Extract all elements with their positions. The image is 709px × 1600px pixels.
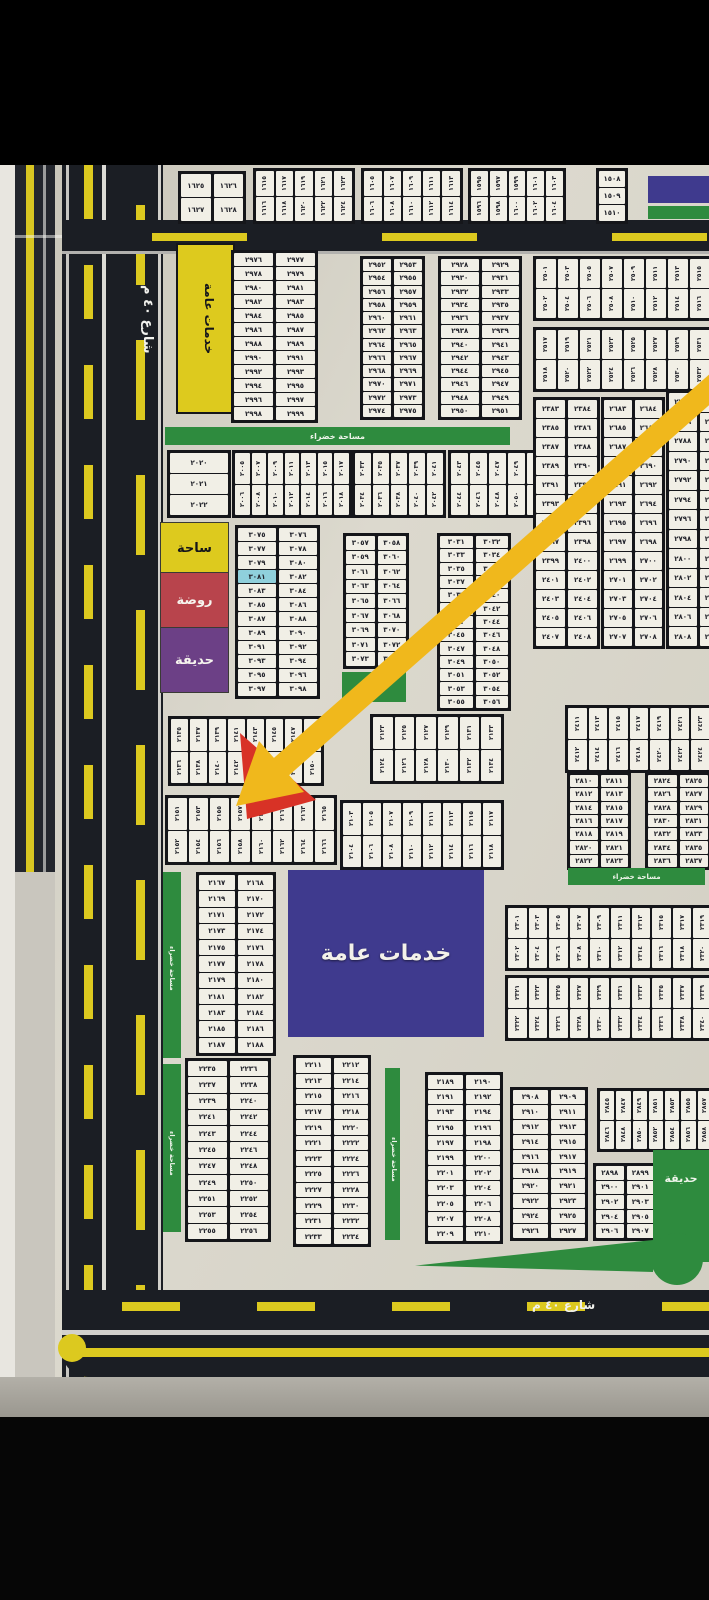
plot-٢٦٩٢: ٢٦٩٢ [635,476,663,494]
plot-٢٩٨١: ٢٩٨١ [276,281,315,294]
plot-٢٠١٨: ٢٠١٨ [334,485,349,516]
green-area-label: مساحة خضراء [612,873,660,881]
plot-٢٩٨٧: ٢٩٨٧ [276,323,315,336]
plot-٢٨٥٨: ٢٨٥٨ [698,1121,709,1150]
plot-٢٣٣٨: ٢٣٣٨ [673,1009,692,1039]
plot-٢٩٣٠: ٢٩٣٠ [441,272,479,284]
plot-٢١٨٦: ٢١٨٦ [238,1021,274,1036]
plot-٢٩١٨: ٢٩١٨ [513,1164,548,1178]
plot-٢٨٥١: ٢٨٥١ [649,1091,663,1120]
plot-٢٨٠٢: ٢٨٠٢ [669,569,697,588]
plot-٢٤٠٥: ٢٤٠٥ [536,609,565,627]
plot-٢١٥٥: ٢١٥٥ [210,798,229,830]
plot-٢٦٨٤: ٢٦٨٤ [635,400,663,418]
street-40m-bottom-road: شارع ٤٠ م [62,1290,709,1377]
plot-٢٣٩٣: ٢٣٩٣ [536,495,565,513]
green-area-bar-right: مساحة خضراء [568,868,705,885]
plot-٢٣٠٤: ٢٣٠٤ [529,939,548,969]
top-road [62,220,709,254]
plot-١٦٢٤: ١٦٢٤ [334,197,352,222]
plot-٢٣٠٦: ٢٣٠٦ [549,939,568,969]
plot-٢٢٢١: ٢٢٢١ [296,1136,331,1151]
plot-٢٥١٣: ٢٥١٣ [668,259,688,288]
plot-٢٢٠٥: ٢٢٠٥ [428,1196,463,1210]
street-bottom-label: شارع ٤٠ م [532,1298,595,1312]
plot-٢٠٤٩: ٢٠٤٩ [508,453,525,484]
plot-٢٩٥٨: ٢٩٥٨ [363,299,391,311]
plot-١٦٠٠: ١٦٠٠ [509,197,526,222]
plot-٢٥٢٢: ٢٥٢٢ [580,360,600,389]
plot-١٦٠٦: ١٦٠٦ [364,197,382,222]
plot-٢٠١٤: ٢٠١٤ [301,485,316,516]
plot-٢٩٤٩: ٢٩٤٩ [482,392,520,404]
plot-٢٠٢١: ٢٠٢١ [170,474,228,494]
plot-٢٨٠٧: ٢٨٠٧ [700,608,709,627]
plot-٢٣٠٨: ٢٣٠٨ [570,939,589,969]
plot-map-photo: شارع ٤٠ م شارع ٤٠ م ١٦٢٦١٦٢٥١٦٢٨١٦٢٧ ١٦٢… [0,0,709,1600]
plot-٢١٦٧: ٢١٦٧ [199,875,235,890]
plot-٢٧٠١: ٢٧٠١ [604,571,632,589]
plot-٢١٤٤: ٢١٤٤ [247,752,264,784]
plot-١٦١٣: ١٦١٣ [442,171,460,196]
plot-٢٢٢٣: ٢٢٢٣ [296,1151,331,1166]
plot-٢٣١٠: ٢٣١٠ [590,939,609,969]
green-space-sliver [648,206,709,219]
plot-٢٤٢٣: ٢٤٢٣ [691,708,709,739]
plot-٢٦٩٧: ٢٦٩٧ [604,533,632,551]
plot-٢٨٠٤: ٢٨٠٤ [669,588,697,607]
plot-٢٦٩٥: ٢٦٩٥ [604,514,632,532]
plot-block-1508-1510: ١٥٠٨١٥٠٩١٥١٠ [596,168,628,224]
plot-٢٣٣٠: ٢٣٣٠ [590,1009,609,1039]
plot-٢٩٠١: ٢٩٠١ [627,1181,655,1195]
plot-٢٩٠٤: ٢٩٠٤ [596,1210,624,1224]
plot-٣٠٤٨: ٣٠٤٨ [476,642,509,654]
plot-٢٥١٠: ٢٥١٠ [624,289,644,318]
plot-٢٠٤٧: ٢٠٤٧ [489,453,506,484]
plot-١٥٠٩: ١٥٠٩ [599,188,625,204]
plot-١٦٠١: ١٦٠١ [527,171,544,196]
plot-٢٩٣٥: ٢٩٣٥ [482,299,520,311]
plot-١٦٠٨: ١٦٠٨ [384,197,402,222]
plot-٢١٢٩: ٢١٢٩ [438,717,458,749]
plot-٣٠٦٦: ٣٠٦٦ [378,594,407,608]
plot-٢١٣٣: ٢١٣٣ [481,717,501,749]
plot-٢٠١٥: ٢٠١٥ [318,453,333,484]
plot-٢٨٤٥: ٢٨٤٥ [600,1091,614,1120]
plot-٢٨٠٠: ٢٨٠٠ [669,549,697,568]
plot-٢٣٨٩: ٢٣٨٩ [536,457,565,475]
plot-٢٩١٩: ٢٩١٩ [551,1164,586,1178]
plot-٢٩١٠: ٢٩١٠ [513,1105,548,1119]
plot-١٦١١: ١٦١١ [423,171,441,196]
plot-٢١٦٣: ٢١٦٣ [294,798,313,830]
plot-٢٩٤٤: ٢٩٤٤ [441,365,479,377]
plot-٢٣٣٧: ٢٣٣٧ [673,978,692,1008]
plot-٢٠١٠: ٢٠١٠ [268,485,283,516]
plot-٢٩٧٨: ٢٩٧٨ [234,267,273,280]
public-services-block-small [648,176,709,203]
plot-٢٩٨٤: ٢٩٨٤ [234,309,273,322]
plot-block-2383-2408: ٢٣٨٤٢٣٨٣٢٣٨٦٢٣٨٥٢٣٨٨٢٣٨٧٢٣٩٠٢٣٨٩٢٣٩٢٢٣٩١… [533,397,600,649]
road-border-line [82,1348,709,1357]
plot-٣٠٧٧: ٣٠٧٧ [238,542,276,555]
plot-strip-2845-2858: ٢٨٥٧٢٨٥٥٢٨٥٣٢٨٥١٢٨٤٩٢٨٤٧٢٨٤٥٢٨٥٨٢٨٥٦٢٨٥٤… [597,1088,709,1152]
plot-٢٥١٥: ٢٥١٥ [690,259,709,288]
plot-٣٠٣٥: ٣٠٣٥ [440,563,473,575]
plot-٢٢٤٢: ٢٢٤٢ [230,1110,269,1125]
plot-٢٩٦١: ٢٩٦١ [394,312,422,324]
plot-٢٣١٤: ٢٣١٤ [632,939,651,969]
plot-٢١٨٧: ٢١٨٧ [199,1038,235,1053]
road-edge-line [66,165,69,1377]
plot-٢٢٠٢: ٢٢٠٢ [466,1166,501,1180]
plot-٣٠٧١: ٣٠٧١ [346,638,375,652]
plot-٢٨٣٥: ٢٨٣٥ [680,841,709,853]
plot-٢٣٢٠: ٢٣٢٠ [693,939,709,969]
green-area-label: مساحة خضراء [168,946,176,991]
plot-٢٣١٦: ٢٣١٦ [652,939,671,969]
plot-٢٦٨٣: ٢٦٨٣ [604,400,632,418]
plot-٢٧٨٤: ٢٧٨٤ [669,393,697,412]
street-left-label: شارع ٤٠ م [140,285,155,354]
plot-٢٤١٨: ٢٤١٨ [630,740,649,771]
plot-٢٢٢٨: ٢٢٢٨ [334,1183,369,1198]
plot-٢١٣٧: ٢١٣٧ [190,719,207,751]
plot-٢٨٢١: ٢٨٢١ [601,841,629,853]
green-area-strip-vertical: مساحة خضراء [385,1068,400,1240]
plot-٢٩٩٧: ٢٩٩٧ [276,393,315,406]
plot-٢٩٢٤: ٢٩٢٤ [513,1209,548,1223]
plot-٢٨٩٨: ٢٨٩٨ [596,1166,624,1180]
legend-saha: ساحة [160,522,229,574]
plot-٢٠٠٦: ٢٠٠٦ [235,485,250,516]
plot-٢٩٧٤: ٢٩٧٤ [363,405,391,417]
plot-٣٠٥٩: ٣٠٥٩ [346,551,375,565]
plot-٣٠٥٠: ٣٠٥٠ [476,656,509,668]
plot-٢٨٣٤: ٢٨٣٤ [648,841,677,853]
plot-block-3031-3056: ٣٠٣٢٣٠٣١٣٠٣٤٣٠٣٣٣٠٣٦٣٠٣٥٣٠٣٨٣٠٣٧٣٠٤٠٣٠٣٩… [437,533,511,711]
plot-٢١١٣: ٢١١٣ [443,803,461,835]
plot-٢٢٥١: ٢٢٥١ [188,1191,227,1206]
plot-٢٤١٤: ٢٤١٤ [589,740,608,771]
plot-٣٠٩٧: ٣٠٩٧ [238,683,276,696]
plot-٢٧٨٦: ٢٧٨٦ [669,413,697,432]
plot-٣٠٤١: ٣٠٤١ [440,603,473,615]
plot-٢٤٠٢: ٢٤٠٢ [568,571,597,589]
plot-block-top-strip: ١٦١٣١٦١١١٦٠٩١٦٠٧١٦٠٥١٦١٤١٦١٢١٦١٠١٦٠٨١٦٠٦ [361,168,463,224]
plot-٣٠٧٢: ٣٠٧٢ [378,638,407,652]
plot-strip-2123-2134: ٢١٣٣٢١٣١٢١٢٩٢١٢٧٢١٢٥٢١٢٣٢١٣٤٢١٣٢٢١٣٠٢١٢٨… [370,714,504,784]
plot-٣٠٨٧: ٣٠٨٧ [238,612,276,625]
plot-٢٨١٤: ٢٨١٤ [570,802,598,814]
plot-block-2952-2975: ٢٩٥٣٢٩٥٢٢٩٥٥٢٩٥٤٢٩٥٧٢٩٥٦٢٩٥٩٢٩٥٨٢٩٦١٢٩٦٠… [360,256,425,420]
plot-٢٠٤٢: ٢٠٤٢ [427,485,443,516]
plot-٢٢٢٤: ٢٢٢٤ [334,1151,369,1166]
plot-١٦٢٣: ١٦٢٣ [334,171,352,196]
plot-٢٧٨٧: ٢٧٨٧ [700,413,709,432]
plot-٢١١٠: ٢١١٠ [403,836,421,868]
plot-٢٤٠٤: ٢٤٠٤ [568,590,597,608]
plot-٣٠٩٤: ٣٠٩٤ [279,655,317,668]
plot-٢٥١٩: ٢٥١٩ [558,330,578,359]
plot-١٦٢٧: ١٦٢٧ [181,198,211,221]
plot-٢٥١٢: ٢٥١٢ [646,289,666,318]
plot-٢٣٨٨: ٢٣٨٨ [568,438,597,456]
plot-strip-2151-2166-arrow-target: ٢١٦٥٢١٦٣٢١٦١٢١٥٩٢١٥٧٢١٥٥٢١٥٣٢١٥١٢١٦٦٢١٦٤… [165,795,337,865]
plot-٢٩١٢: ٢٩١٢ [513,1120,548,1134]
plot-٢٨٥٠: ٢٨٥٠ [633,1121,647,1150]
plot-block-top-strip: ١٦٢٣١٦٢١١٦١٩١٦١٧١٦١٥١٦٢٤١٦٢٢١٦٢٠١٦١٨١٦١٦ [253,168,355,224]
plot-٢٩٠٧: ٢٩٠٧ [627,1224,655,1238]
photo-black-bottom [0,1417,709,1600]
plot-١٦٠٤: ١٦٠٤ [546,197,563,222]
wall-strip-left [0,165,15,1415]
plot-٢٨٤٨: ٢٨٤٨ [616,1121,630,1150]
plot-٢٠٣٦: ٢٠٣٦ [373,485,389,516]
plot-٢٩٩٩: ٢٩٩٩ [276,407,315,420]
plot-٢٩٠٠: ٢٩٠٠ [596,1181,624,1195]
public-services-yellow-block: خدمات عامة [176,243,235,414]
plot-٢٠٣٥: ٢٠٣٥ [373,453,389,484]
plot-٢٣٠٢: ٢٣٠٢ [508,939,527,969]
plot-٢٨٤٩: ٢٨٤٩ [633,1091,647,1120]
plot-٢٢٢٢: ٢٢٢٢ [334,1136,369,1151]
plot-٢٩٠٨: ٢٩٠٨ [513,1090,548,1104]
plot-٢١٤٠: ٢١٤٠ [209,752,226,784]
plot-٢٩٨٦: ٢٩٨٦ [234,323,273,336]
plot-٢١٤٩: ٢١٤٩ [304,719,321,751]
plot-٢٨٢٥: ٢٨٢٥ [680,775,709,787]
plot-٢١٦٨: ٢١٦٨ [238,875,274,890]
plot-٢١٦٩: ٢١٦٩ [199,891,235,906]
plot-٣٠٧٤: ٣٠٧٤ [378,652,407,666]
plot-٢١٧١: ٢١٧١ [199,908,235,923]
plot-٢٢٤٠: ٢٢٤٠ [230,1094,269,1109]
plot-٢١٩٤: ٢١٩٤ [466,1105,501,1119]
plot-٢١٧٧: ٢١٧٧ [199,956,235,971]
plot-٢٦٨٧: ٢٦٨٧ [604,438,632,456]
plot-٢٨٣٣: ٢٨٣٣ [680,828,709,840]
plot-٢٣٩٨: ٢٣٩٨ [568,533,597,551]
plot-block-2189-2210: ٢١٩٠٢١٨٩٢١٩٢٢١٩١٢١٩٤٢١٩٣٢١٩٦٢١٩٥٢١٩٨٢١٩٧… [425,1072,503,1244]
plot-١٦١٦: ١٦١٦ [256,197,274,222]
plot-٢٧٠٢: ٢٧٠٢ [635,571,663,589]
plot-٢٨٢٧: ٢٨٢٧ [680,788,709,800]
plot-١٥٩٧: ١٥٩٧ [490,171,507,196]
plot-٢٨١٦: ٢٨١٦ [570,815,598,827]
plot-٢٣١٧: ٢٣١٧ [673,908,692,938]
plot-٢١٢٥: ٢١٢٥ [395,717,415,749]
plot-٢٩٥٤: ٢٩٥٤ [363,272,391,284]
plot-٣٠٤٦: ٣٠٤٦ [476,629,509,641]
plot-٣٠٦٨: ٣٠٦٨ [378,609,407,623]
plot-٢٩٥٩: ٢٩٥٩ [394,299,422,311]
plot-٢٩٥١: ٢٩٥١ [482,405,520,417]
plot-٢٩٢٧: ٢٩٢٧ [551,1224,586,1238]
plot-٢٩٤١: ٢٩٤١ [482,339,520,351]
plot-٣٠٦٤: ٣٠٦٤ [378,580,407,594]
plot-٢٢٢٠: ٢٢٢٠ [334,1120,369,1135]
street-40m-left-road: شارع ٤٠ م [62,165,163,1377]
roundabout-green-circle [651,1233,703,1285]
legend-hadiqa-label: حديقة [175,653,214,668]
road-dash-line [152,233,709,241]
plot-٢١٠٥: ٢١٠٥ [363,803,381,835]
plot-٢١٨٣: ٢١٨٣ [199,1005,235,1020]
plot-٢٢٣٨: ٢٢٣٨ [230,1077,269,1092]
plot-strip-right-upper: ٢٥١٥٢٥١٣٢٥١١٢٥٠٩٢٥٠٧٢٥٠٥٢٥٠٣٢٥٠١٢٥١٦٢٥١٤… [533,256,709,321]
plot-٢٥٣١: ٢٥٣١ [690,330,709,359]
plot-٢٥٢٧: ٢٥٢٧ [646,330,666,359]
plot-٢٣٠١: ٢٣٠١ [508,908,527,938]
plot-٣٠٦١: ٣٠٦١ [346,565,375,579]
plot-strip-2033-2042: ٢٠٤١٢٠٣٩٢٠٣٧٢٠٣٥٢٠٣٣٢٠٤٢٢٠٤٠٢٠٣٨٢٠٣٦٢٠٣٤ [352,450,446,518]
plot-٢٨٥٦: ٢٨٥٦ [681,1121,695,1150]
plot-٢٤١٣: ٢٤١٣ [589,708,608,739]
plot-٢٩٨٣: ٢٩٨٣ [276,295,315,308]
plot-٢٨٥٢: ٢٨٥٢ [649,1121,663,1150]
plot-٢٩٠٣: ٢٩٠٣ [627,1195,655,1209]
plot-٢٣١١: ٢٣١١ [611,908,630,938]
plot-٢٩٧٢: ٢٩٧٢ [363,392,391,404]
plot-٢٠٤٤: ٢٠٤٤ [451,485,468,516]
plot-strip-2411-2424: ٢٤٢٣٢٤٢١٢٤١٩٢٤١٧٢٤١٥٢٤١٣٢٤١١٢٤٢٤٢٤٢٢٢٤٢٠… [565,705,709,773]
plot-٢٩٦٥: ٢٩٦٥ [394,339,422,351]
plot-٢٨١٥: ٢٨١٥ [601,802,629,814]
plot-٢٣٩٧: ٢٣٩٧ [536,533,565,551]
plot-٢٠٤٣: ٢٠٤٣ [451,453,468,484]
plot-٢٨١٣: ٢٨١٣ [601,788,629,800]
plot-٢٥٢٤: ٢٥٢٤ [602,360,622,389]
plot-٢٩٧٠: ٢٩٧٠ [363,378,391,390]
plot-٣٠٣٤: ٣٠٣٤ [476,549,509,561]
plot-٢٢١٤: ٢٢١٤ [334,1074,369,1089]
plot-٢١٩٥: ٢١٩٥ [428,1121,463,1135]
plot-block-2908-2927: ٢٩٠٩٢٩٠٨٢٩١١٢٩١٠٢٩١٣٢٩١٢٢٩١٥٢٩١٤٢٩١٧٢٩١٦… [510,1087,588,1241]
plot-١٦٢٠: ١٦٢٠ [295,197,313,222]
plot-٢٨٣٠: ٢٨٣٠ [648,815,677,827]
plot-block-2976-2999: ٢٩٧٧٢٩٧٦٢٩٧٩٢٩٧٨٢٩٨١٢٩٨٠٢٩٨٣٢٩٨٢٢٩٨٥٢٩٨٤… [231,250,318,423]
plot-٢٢٣١: ٢٢٣١ [296,1214,331,1229]
plot-٢٢٣٣: ٢٢٣٣ [296,1229,331,1244]
plot-٣٠٤٥: ٣٠٤٥ [440,629,473,641]
plot-٢١٤٥: ٢١٤٥ [266,719,283,751]
plot-block-2683-2708: ٢٦٨٤٢٦٨٣٢٦٨٦٢٦٨٥٢٦٨٨٢٦٨٧٢٦٩٠٢٦٨٩٢٦٩٢٢٦٩١… [601,397,665,649]
road-corner-dot [58,1334,86,1362]
plot-٢٨٣٧: ٢٨٣٧ [680,855,709,867]
plot-٢١٥٧: ٢١٥٧ [231,798,250,830]
plot-٢٣٣٩: ٢٣٣٩ [693,978,709,1008]
plot-٢٠٠٧: ٢٠٠٧ [252,453,267,484]
plot-٢١٥٦: ٢١٥٦ [210,831,229,863]
plot-٢٩٠٥: ٢٩٠٥ [627,1210,655,1224]
plot-٢١٢٧: ٢١٢٧ [416,717,436,749]
plot-٣٠٦٠: ٣٠٦٠ [378,551,407,565]
plot-٣٠٨١: ٣٠٨١ [238,570,276,583]
plot-٢٩٩١: ٢٩٩١ [276,351,315,364]
plot-٢٢٠٦: ٢٢٠٦ [466,1196,501,1210]
plot-٢٩٨٠: ٢٩٨٠ [234,281,273,294]
plot-٢٩٢٠: ٢٩٢٠ [513,1179,548,1193]
plot-٢٩٨٥: ٢٩٨٥ [276,309,315,322]
plot-٢١٨٠: ٢١٨٠ [238,973,274,988]
plot-٣٠٣٢: ٣٠٣٢ [476,536,509,548]
plot-٣٠٨٨: ٣٠٨٨ [279,612,317,625]
plot-٢٠٣٤: ٢٠٣٤ [355,485,371,516]
plot-٢٩٢٢: ٢٩٢٢ [513,1194,548,1208]
plot-٢٤٠٨: ٢٤٠٨ [568,628,597,646]
plot-٢٩١٥: ٢٩١٥ [551,1135,586,1149]
plot-٢١٨٨: ٢١٨٨ [238,1038,274,1053]
plot-block-top-strip: ١٦٠٣١٦٠١١٥٩٩١٥٩٧١٥٩٥١٦٠٤١٦٠٢١٦٠٠١٥٩٨١٥٩٦ [468,168,566,224]
plot-٢٧٠٦: ٢٧٠٦ [635,609,663,627]
plot-٢٧٠٧: ٢٧٠٧ [604,628,632,646]
plot-٢٣١٢: ٢٣١٢ [611,939,630,969]
plot-٢١٥٢: ٢١٥٢ [168,831,187,863]
plot-٣٠٦٩: ٣٠٦٩ [346,623,375,637]
plot-٢١٤٧: ٢١٤٧ [285,719,302,751]
plot-٢٣٢٣: ٢٣٢٣ [529,978,548,1008]
plot-٢٥٢٦: ٢٥٢٦ [624,360,644,389]
plot-٢٢٢٦: ٢٢٢٦ [334,1167,369,1182]
plot-٣٠٦٥: ٣٠٦٥ [346,594,375,608]
plot-٢٨٢٩: ٢٨٢٩ [680,802,709,814]
plot-٢١٣٥: ٢١٣٥ [171,719,188,751]
plot-٢١٨٤: ٢١٨٤ [238,1005,274,1020]
plot-٣٠٥٧: ٣٠٥٧ [346,536,375,550]
plot-٢٩٧١: ٢٩٧١ [394,378,422,390]
plot-٢٨٠٨: ٢٨٠٨ [669,627,697,646]
plot-٢٣٣٥: ٢٣٣٥ [652,978,671,1008]
plot-٣٠٧٠: ٣٠٧٠ [378,623,407,637]
plot-٢١٠٤: ٢١٠٤ [343,836,361,868]
plot-٢٣٣٦: ٢٣٣٦ [652,1009,671,1039]
plot-٢٩٢٩: ٢٩٢٩ [482,259,520,271]
plot-٢٤١٢: ٢٤١٢ [568,740,587,771]
plot-٢٥١٨: ٢٥١٨ [536,360,556,389]
plot-٢٢٣٧: ٢٢٣٧ [188,1077,227,1092]
plot-٢٤١٥: ٢٤١٥ [609,708,628,739]
plot-٢١٩٠: ٢١٩٠ [466,1075,501,1089]
plot-٢٨٠١: ٢٨٠١ [700,549,709,568]
plot-٢٩٣٦: ٢٩٣٦ [441,312,479,324]
plot-٢٠٤٨: ٢٠٤٨ [489,485,506,516]
plot-٣٠٩١: ٣٠٩١ [238,641,276,654]
plot-٢٢٢٩: ٢٢٢٩ [296,1198,331,1213]
plot-٢١٣٢: ٢١٣٢ [460,750,480,782]
plot-٢١٧٨: ٢١٧٨ [238,956,274,971]
plot-٢٥٢٥: ٢٥٢٥ [624,330,644,359]
plot-strip-2321-2340: ٢٣٣٩٢٣٣٧٢٣٣٥٢٣٣٣٢٣٣١٢٣٢٩٢٣٢٧٢٣٢٥٢٣٢٣٢٣٢١… [505,975,709,1041]
legend-rawda: روضة [160,572,229,629]
road-lane-line [62,1330,709,1335]
plot-٢١٥١: ٢١٥١ [168,798,187,830]
plot-٢٩٤٦: ٢٩٤٦ [441,378,479,390]
plot-٣٠٣٩: ٣٠٣٩ [440,589,473,601]
plot-٣٠٦٢: ٣٠٦٢ [378,565,407,579]
plot-٢٢٤٨: ٢٢٤٨ [230,1159,269,1174]
plot-٢٩٤٧: ٢٩٤٧ [482,378,520,390]
plot-٣٠٥٨: ٣٠٥٨ [378,536,407,550]
plot-٢٣٠٥: ٢٣٠٥ [549,908,568,938]
plot-block-2824-2837: ٢٨٢٥٢٨٢٤٢٨٢٧٢٨٢٦٢٨٢٩٢٨٢٨٢٨٣١٢٨٣٠٢٨٣٣٢٨٣٢… [645,772,709,870]
plot-block-1625-1628: ١٦٢٦١٦٢٥١٦٢٨١٦٢٧ [178,171,246,224]
plot-٢٨٢٠: ٢٨٢٠ [570,841,598,853]
plot-٢٤٢٠: ٢٤٢٠ [650,740,669,771]
plot-٢٢٠٤: ٢٢٠٤ [466,1181,501,1195]
plot-٢١٦٥: ٢١٦٥ [315,798,334,830]
